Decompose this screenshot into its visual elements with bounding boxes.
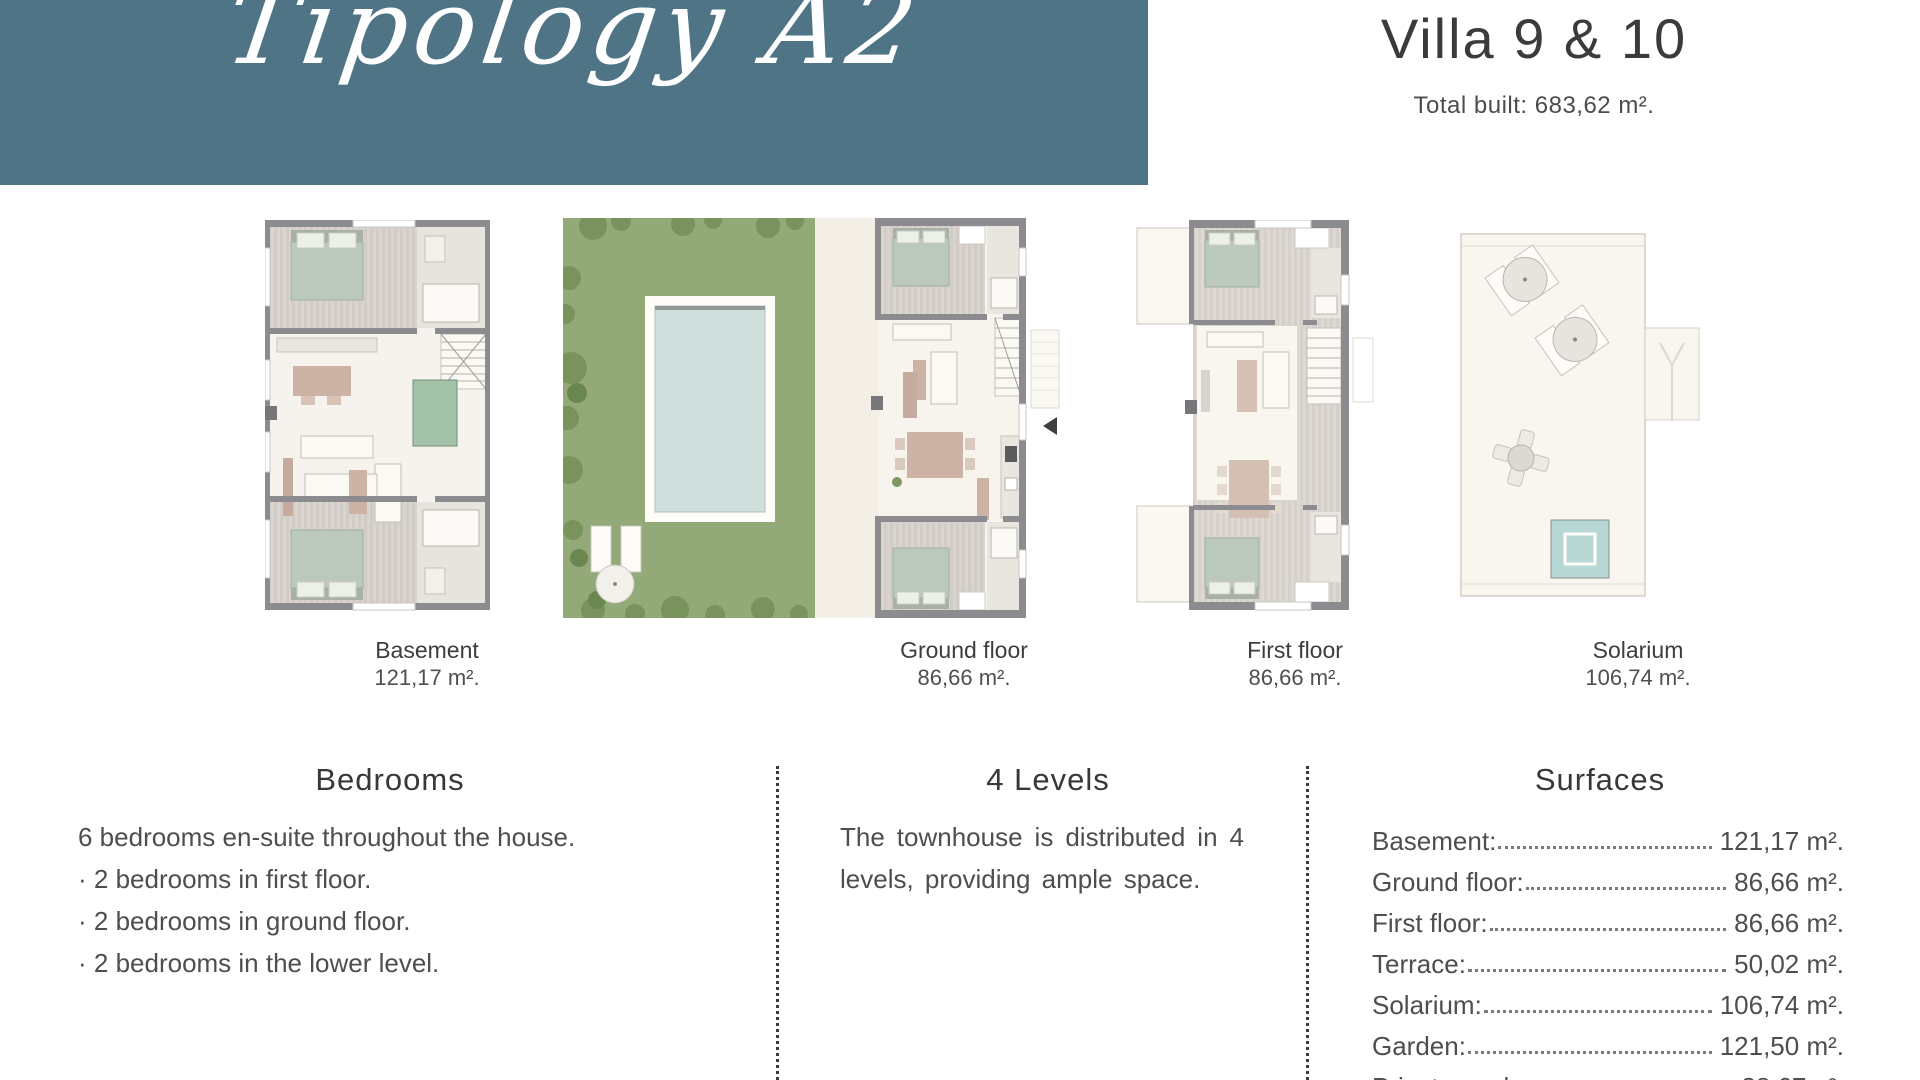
plant (892, 477, 902, 487)
stair-bulkhead (1645, 328, 1699, 420)
villa-title: Villa 9 & 10 (1148, 6, 1920, 71)
surface-label: First floor: (1372, 908, 1488, 943)
plan-area: 86,66 m². (1247, 664, 1343, 692)
surface-value: 86,66 m². (1734, 908, 1844, 943)
plan-label-solarium: Solarium 106,74 m². (1585, 636, 1690, 692)
surface-label: Basement: (1372, 826, 1496, 861)
plan-area: 121,17 m². (374, 664, 479, 692)
stairs (1307, 328, 1341, 404)
ground-plan-drawing (563, 218, 1063, 618)
bathroom (417, 226, 486, 328)
kitchen-counter (277, 338, 377, 352)
levels-title: 4 Levels (986, 762, 1109, 798)
floorplan-ground (563, 218, 1063, 618)
floorplan-solarium (1455, 220, 1705, 615)
plan-name: Ground floor (900, 636, 1028, 664)
dining-table (895, 432, 975, 478)
surface-value: 86,66 m². (1734, 867, 1844, 902)
dot-leader (1490, 928, 1727, 931)
solarium-plan-drawing (1455, 220, 1705, 615)
header-band: Tipology A2 (0, 0, 1148, 185)
surface-value: 121,17 m². (1720, 826, 1844, 861)
surface-label: Terrace: (1372, 949, 1466, 984)
plan-name: Solarium (1585, 636, 1690, 664)
first-plan-drawing (1135, 220, 1375, 615)
surface-row: Basement: 121,17 m². (1372, 820, 1844, 861)
plan-name: Basement (374, 636, 479, 664)
surface-row: Garden: 121,50 m². (1372, 1025, 1844, 1066)
bedrooms-line: · 2 bedrooms in first floor. (78, 858, 738, 900)
typology-script-title: Tipology A2 (219, 0, 930, 88)
bedrooms-text: 6 bedrooms en-suite throughout the house… (78, 816, 738, 984)
plan-area: 86,66 m². (900, 664, 1028, 692)
surface-label: Solarium: (1372, 990, 1482, 1025)
billiard-table (413, 380, 457, 446)
bed (893, 548, 949, 609)
adjacent-unit-outline (1353, 338, 1373, 402)
dot-leader (1468, 969, 1726, 972)
bed (893, 228, 949, 286)
dotted-divider (1306, 766, 1309, 1080)
plan-area: 106,74 m². (1585, 664, 1690, 692)
jacuzzi (1551, 520, 1609, 578)
surface-row: First floor: 86,66 m². (1372, 902, 1844, 943)
bedrooms-line: · 2 bedrooms in the lower level. (78, 942, 738, 984)
basement-plan-drawing (265, 220, 490, 615)
plan-label-first: First floor 86,66 m². (1247, 636, 1343, 692)
entrance-arrow (1043, 417, 1057, 435)
bed (291, 530, 363, 600)
surfaces-table: Basement: 121,17 m². Ground floor: 86,66… (1372, 820, 1844, 1080)
bedrooms-title: Bedrooms (315, 762, 464, 798)
stairs (995, 318, 1021, 396)
surface-row: Terrace: 50,02 m². (1372, 943, 1844, 984)
plan-name: First floor (1247, 636, 1343, 664)
dot-leader (1498, 846, 1711, 849)
surface-value: 121,50 m². (1720, 1031, 1844, 1066)
dot-leader (1484, 1010, 1712, 1013)
surface-value: 106,74 m². (1720, 990, 1844, 1025)
surface-label: Ground floor: (1372, 867, 1524, 902)
surface-row: Solarium: 106,74 m². (1372, 984, 1844, 1025)
floorplan-first (1135, 220, 1375, 615)
surface-label: Private pool: (1372, 1072, 1517, 1080)
levels-text: The townhouse is distributed in 4 levels… (840, 816, 1244, 900)
plan-label-ground: Ground floor 86,66 m². (900, 636, 1028, 692)
surfaces-title: Surfaces (1535, 762, 1665, 798)
dot-leader (1526, 887, 1726, 890)
bed (1205, 230, 1259, 287)
plan-label-basement: Basement 121,17 m². (374, 636, 479, 692)
header-right: Villa 9 & 10 Total built: 683,62 m². (1148, 0, 1920, 185)
terrace (815, 218, 879, 618)
balcony (1137, 228, 1191, 324)
balcony (1137, 506, 1191, 602)
surface-value: 38,67m². (1741, 1072, 1844, 1080)
bedrooms-line: · 2 bedrooms in ground floor. (78, 900, 738, 942)
bedrooms-line: 6 bedrooms en-suite throughout the house… (78, 816, 738, 858)
dot-leader (1468, 1051, 1712, 1054)
floorplan-basement (265, 220, 490, 615)
bed (1205, 538, 1259, 599)
pool (645, 296, 775, 522)
bed (291, 230, 363, 300)
surface-row: Private pool: 38,67m². (1372, 1066, 1844, 1080)
surface-row: Ground floor: 86,66 m². (1372, 861, 1844, 902)
surface-value: 50,02 m². (1734, 949, 1844, 984)
dotted-divider (776, 766, 779, 1080)
bathroom (417, 502, 486, 604)
brochure-page: Tipology A2 Villa 9 & 10 Total built: 68… (0, 0, 1920, 1080)
surface-label: Garden: (1372, 1031, 1466, 1066)
total-built-area: Total built: 683,62 m². (1148, 92, 1920, 120)
